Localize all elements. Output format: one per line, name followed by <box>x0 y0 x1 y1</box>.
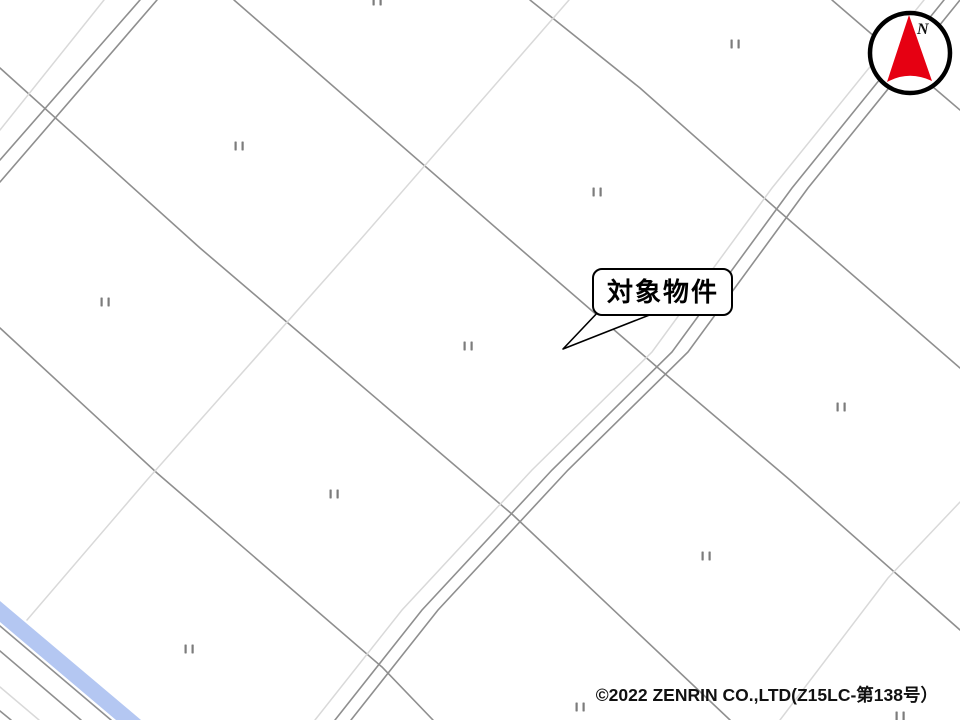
road-left-side-light <box>0 0 104 130</box>
paddy-field-symbol <box>101 298 110 307</box>
compass-north-label: N <box>916 21 930 38</box>
parcel-line-a <box>0 68 730 720</box>
callout-label: 対象物件 <box>607 277 719 307</box>
paddy-field-symbol <box>235 142 244 151</box>
paddy-field-symbol <box>185 645 194 654</box>
paddy-field-symbol <box>330 490 339 499</box>
paddy-field-symbol <box>593 188 602 197</box>
paddy-field-symbol <box>896 712 905 720</box>
road-main-side-light <box>315 0 924 720</box>
paddy-field-symbol <box>837 403 846 412</box>
road-main-right-edge <box>351 0 960 720</box>
paddy-field-symbol <box>464 342 473 351</box>
copyright-text: ©2022 ZENRIN CO.,LTD(Z15LC-第138号） <box>596 685 938 705</box>
parcel-line-l1 <box>27 0 569 620</box>
zenrin-map: 対象物件 N ©2022 ZENRIN CO.,LTD(Z15LC-第138号） <box>0 0 960 720</box>
paddy-field-symbol <box>373 0 382 6</box>
north-compass: N <box>870 13 950 93</box>
map-geometry-layer <box>0 0 960 720</box>
target-property-callout: 対象物件 <box>563 269 732 349</box>
road-left-edge-1 <box>0 0 140 160</box>
paddy-field-symbol <box>702 552 711 561</box>
road-left-edge-2 <box>0 0 157 182</box>
canal-band <box>0 601 141 720</box>
canal-corner-line <box>0 711 11 720</box>
paddy-field-symbol <box>731 40 740 49</box>
road-main-left-edge <box>335 0 944 720</box>
map-canvas: 対象物件 N ©2022 ZENRIN CO.,LTD(Z15LC-第138号） <box>0 0 960 720</box>
paddy-field-symbol <box>576 703 585 712</box>
canal-lower-edge <box>0 626 111 720</box>
